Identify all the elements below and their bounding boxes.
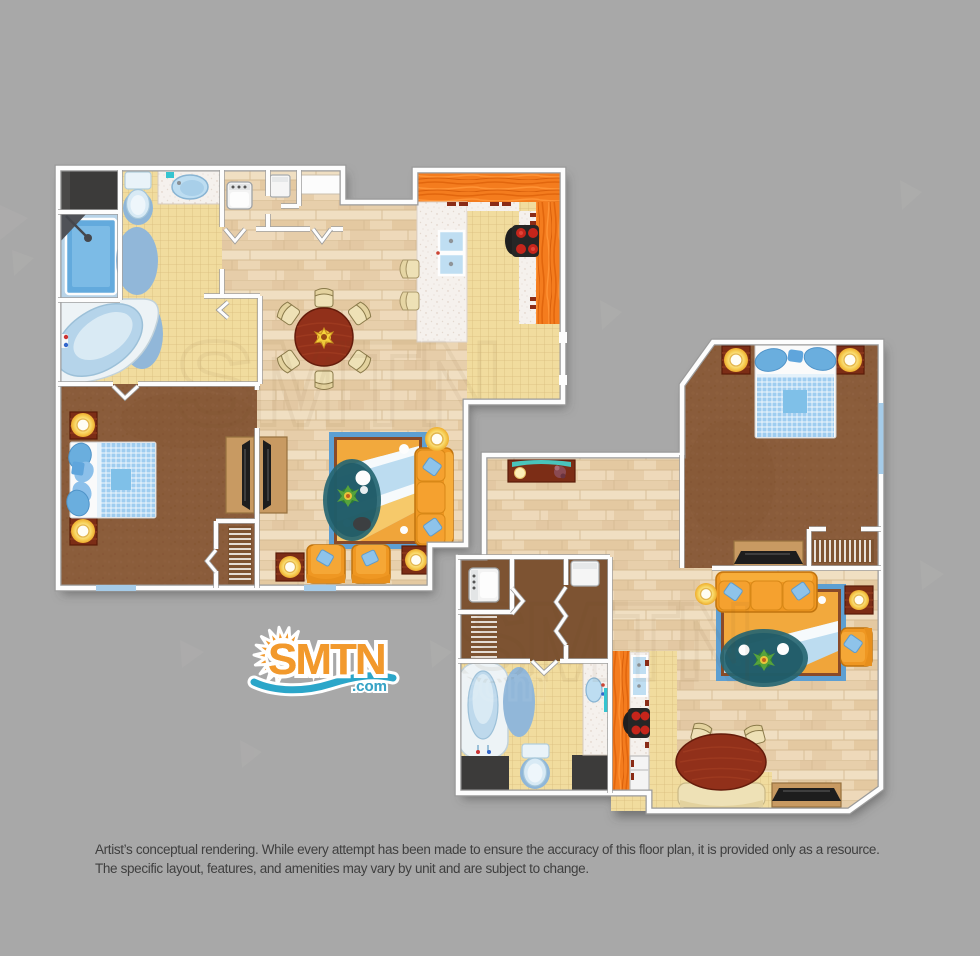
svg-text:.com: .com <box>352 678 387 695</box>
svg-text:SMTN: SMTN <box>268 635 385 684</box>
svg-text:The specific layout, features,: The specific layout, features, and ameni… <box>95 861 589 876</box>
svg-text:Artist’s conceptual rendering.: Artist’s conceptual rendering. While eve… <box>95 842 880 857</box>
